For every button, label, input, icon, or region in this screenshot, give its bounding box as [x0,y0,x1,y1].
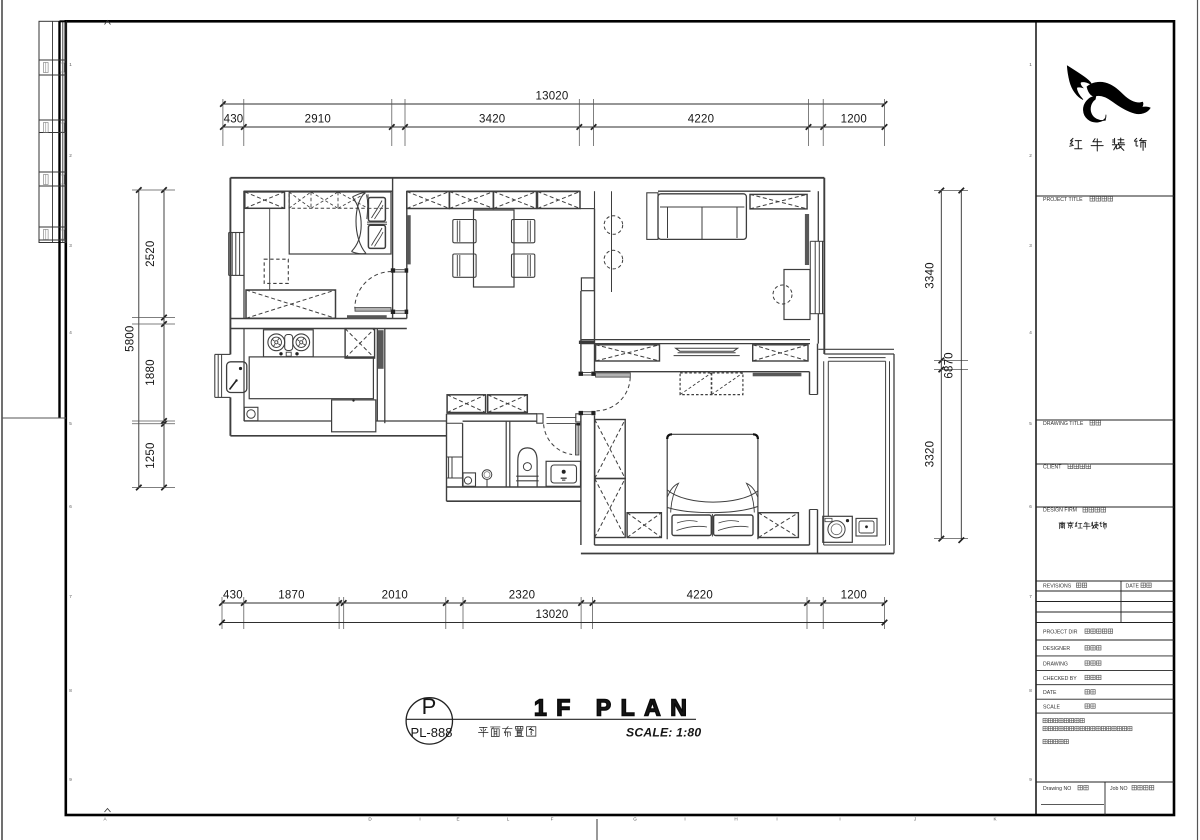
svg-text:2910: 2910 [305,114,331,126]
svg-text:6870: 6870 [944,352,956,378]
svg-text:SCALE: SCALE [1043,704,1061,710]
svg-text:P: P [422,694,437,719]
svg-text:9: 9 [69,777,72,782]
svg-text:5: 5 [69,421,72,426]
svg-text:2520: 2520 [145,241,157,267]
svg-text:4: 4 [69,330,72,335]
svg-text:6: 6 [1029,504,1032,509]
svg-text:F: F [551,817,554,822]
svg-text:3: 3 [1029,243,1032,248]
svg-text:2: 2 [69,153,72,158]
svg-text:13020: 13020 [536,91,569,103]
svg-text:REVISIONS: REVISIONS [1043,584,1072,590]
svg-text:DESIGNER: DESIGNER [1043,646,1070,652]
svg-text:13020: 13020 [536,609,569,621]
svg-text:430: 430 [223,590,243,602]
svg-text:7: 7 [69,594,72,599]
svg-text:8: 8 [69,688,72,693]
svg-text:DESIGN FIRM: DESIGN FIRM [1043,508,1077,514]
svg-text:1880: 1880 [145,359,157,385]
svg-text:9: 9 [1029,777,1032,782]
svg-text:1200: 1200 [841,114,867,126]
svg-text:1870: 1870 [278,590,304,602]
svg-text:I: I [684,817,685,822]
svg-text:I: I [419,817,420,822]
svg-text:L: L [507,817,510,822]
svg-text:DRAWING TITLE: DRAWING TITLE [1043,421,1084,427]
svg-text:4220: 4220 [687,590,713,602]
svg-text:3420: 3420 [479,114,505,126]
svg-text:DATE: DATE [1043,690,1057,696]
svg-text:DRAWING: DRAWING [1043,661,1068,667]
svg-text:1F PLAN: 1F PLAN [534,695,696,721]
svg-text:1200: 1200 [841,590,867,602]
svg-text:5800: 5800 [125,326,137,352]
svg-text:I: I [776,817,777,822]
svg-text:3340: 3340 [925,262,937,288]
svg-text:6: 6 [69,504,72,509]
svg-text:DATE: DATE [1126,584,1140,590]
svg-text:3320: 3320 [925,441,937,467]
svg-text:CLIENT: CLIENT [1043,465,1062,471]
svg-text:G: G [633,817,637,822]
svg-text:3: 3 [69,243,72,248]
svg-text:430: 430 [224,114,244,126]
svg-text:2010: 2010 [382,590,408,602]
svg-text:PL-888: PL-888 [411,725,453,740]
svg-text:PROJECT TITLE: PROJECT TITLE [1043,197,1083,203]
svg-text:CHECKED BY: CHECKED BY [1043,676,1077,682]
svg-text:7: 7 [1029,594,1032,599]
svg-text:E: E [456,817,459,822]
svg-text:2320: 2320 [509,590,535,602]
svg-text:1250: 1250 [145,442,157,468]
svg-text:4: 4 [1029,330,1032,335]
svg-text:2: 2 [1029,153,1032,158]
svg-text:5: 5 [1029,421,1032,426]
svg-text:I: I [839,817,840,822]
svg-text:PROJECT DIR: PROJECT DIR [1043,629,1078,635]
svg-text:Job NO: Job NO [1110,786,1128,792]
svg-text:SCALE: 1:80: SCALE: 1:80 [626,726,701,740]
svg-text:4220: 4220 [688,114,714,126]
svg-text:1: 1 [69,62,72,67]
svg-text:8: 8 [1029,688,1032,693]
svg-text:H: H [734,817,737,822]
svg-text:J: J [914,817,916,822]
svg-text:Drawing NO: Drawing NO [1043,786,1071,792]
svg-text:1: 1 [1029,62,1032,67]
